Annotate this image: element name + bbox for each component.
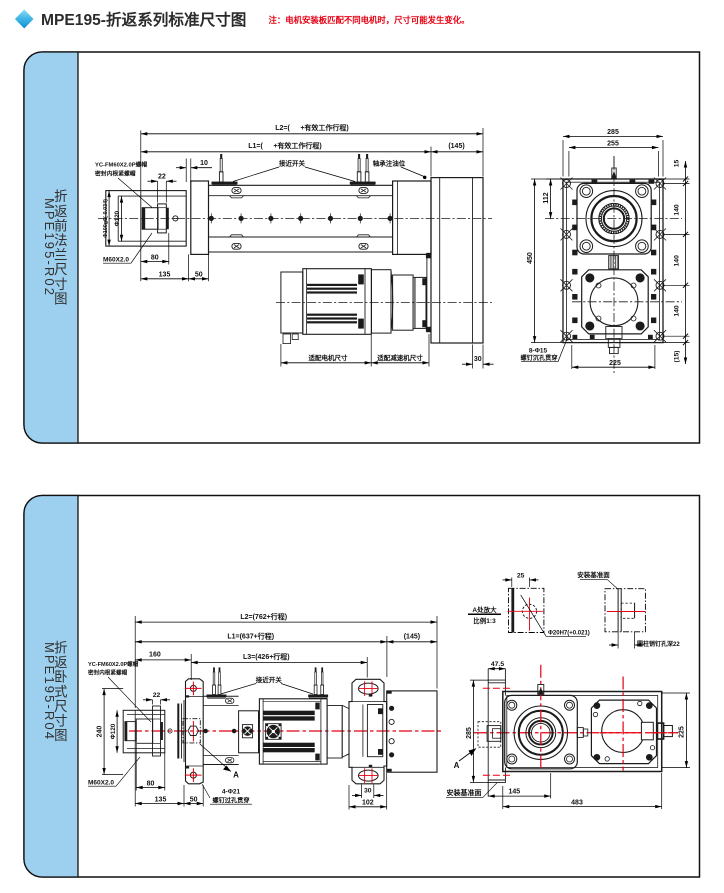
svg-text:Φ120: Φ120 bbox=[110, 723, 117, 739]
svg-text:YC-FM60X2.0P螺帽: YC-FM60X2.0P螺帽 bbox=[88, 660, 139, 668]
svg-text:Φ100g6(-0.034): Φ100g6(-0.034) bbox=[103, 199, 109, 238]
svg-text:比例1:3: 比例1:3 bbox=[473, 616, 496, 625]
svg-text:145: 145 bbox=[508, 788, 520, 795]
svg-text:适配电机尺寸: 适配电机尺寸 bbox=[309, 353, 349, 362]
svg-text:240: 240 bbox=[97, 726, 104, 738]
svg-text:MPE195-R02: MPE195-R02 bbox=[42, 198, 57, 297]
svg-text:30: 30 bbox=[364, 788, 372, 795]
svg-text:MPE195-R04: MPE195-R04 bbox=[42, 642, 57, 741]
svg-text:L1=( +有效工作行程): L1=( +有效工作行程) bbox=[248, 141, 322, 150]
svg-text:30: 30 bbox=[474, 356, 482, 363]
svg-text:15: 15 bbox=[674, 160, 681, 168]
svg-text:112: 112 bbox=[543, 192, 550, 203]
svg-text:285: 285 bbox=[466, 727, 473, 739]
svg-text:483: 483 bbox=[571, 799, 583, 806]
svg-text:22: 22 bbox=[158, 174, 166, 181]
svg-text:适配减速机尺寸: 适配减速机尺寸 bbox=[377, 353, 423, 362]
svg-text:螺钉沉孔贯穿: 螺钉沉孔贯穿 bbox=[520, 354, 557, 362]
svg-text:225: 225 bbox=[678, 726, 685, 738]
svg-text:YC-FM60X2.0P螺帽: YC-FM60X2.0P螺帽 bbox=[95, 161, 147, 169]
svg-text:M60X2.0: M60X2.0 bbox=[103, 257, 129, 264]
svg-text:MPE195-折返系列标准尺寸图: MPE195-折返系列标准尺寸图 bbox=[41, 10, 246, 29]
svg-text:(145): (145) bbox=[404, 634, 420, 641]
svg-text:225: 225 bbox=[609, 360, 621, 367]
svg-text:8-Φ15: 8-Φ15 bbox=[529, 348, 548, 355]
svg-text:Φ20H7(+0.021): Φ20H7(+0.021) bbox=[548, 630, 590, 636]
svg-text:4-Φ21: 4-Φ21 bbox=[222, 789, 241, 796]
svg-text:L1=(637+行程): L1=(637+行程) bbox=[227, 632, 274, 641]
svg-text:102: 102 bbox=[362, 800, 374, 807]
svg-text:轴承注油位: 轴承注油位 bbox=[373, 158, 406, 167]
svg-text:L3=(426+行程): L3=(426+行程) bbox=[243, 652, 290, 661]
svg-text:密封内根紧螺帽: 密封内根紧螺帽 bbox=[95, 170, 136, 178]
svg-text:安装基准面: 安装基准面 bbox=[447, 788, 482, 797]
svg-text:A: A bbox=[454, 761, 460, 770]
svg-text:Φ120: Φ120 bbox=[114, 210, 121, 226]
svg-text:450: 450 bbox=[527, 252, 534, 264]
svg-text:160: 160 bbox=[149, 652, 161, 659]
svg-text:140: 140 bbox=[674, 255, 681, 267]
svg-text:50: 50 bbox=[195, 272, 203, 279]
svg-text:10: 10 bbox=[200, 160, 208, 167]
svg-text:140: 140 bbox=[674, 305, 681, 317]
svg-text:135: 135 bbox=[159, 272, 171, 279]
svg-text:25: 25 bbox=[517, 572, 525, 579]
svg-text:圆柱销钉孔深22: 圆柱销钉孔深22 bbox=[637, 640, 680, 648]
svg-text:135: 135 bbox=[155, 796, 167, 803]
svg-text:螺钉过孔贯穿: 螺钉过孔贯穿 bbox=[212, 797, 249, 805]
svg-text:密封内根紧螺帽: 密封内根紧螺帽 bbox=[88, 669, 128, 677]
svg-text:L2=( +有效工作行程): L2=( +有效工作行程) bbox=[275, 123, 349, 132]
svg-text:(15): (15) bbox=[674, 350, 681, 362]
svg-text:22: 22 bbox=[153, 692, 161, 699]
svg-text:安装基准面: 安装基准面 bbox=[577, 570, 610, 579]
svg-text:A: A bbox=[233, 771, 239, 780]
svg-text:(145): (145) bbox=[448, 143, 464, 150]
svg-text:接近开关: 接近开关 bbox=[256, 675, 283, 684]
svg-text:80: 80 bbox=[151, 254, 159, 261]
svg-text:140: 140 bbox=[674, 204, 681, 216]
svg-text:注：电机安装板匹配不同电机时，尺寸可能发生变化。: 注：电机安装板匹配不同电机时，尺寸可能发生变化。 bbox=[269, 15, 470, 25]
svg-text:285: 285 bbox=[607, 129, 619, 136]
svg-text:50: 50 bbox=[190, 796, 198, 803]
svg-text:80: 80 bbox=[147, 780, 155, 787]
svg-text:L2=(762+行程): L2=(762+行程) bbox=[240, 612, 287, 621]
svg-text:255: 255 bbox=[607, 140, 619, 147]
svg-text:M60X2.0: M60X2.0 bbox=[88, 780, 114, 787]
svg-text:A处放大: A处放大 bbox=[472, 605, 497, 614]
svg-text:47.5: 47.5 bbox=[491, 661, 504, 668]
svg-text:接近开关: 接近开关 bbox=[279, 158, 306, 167]
